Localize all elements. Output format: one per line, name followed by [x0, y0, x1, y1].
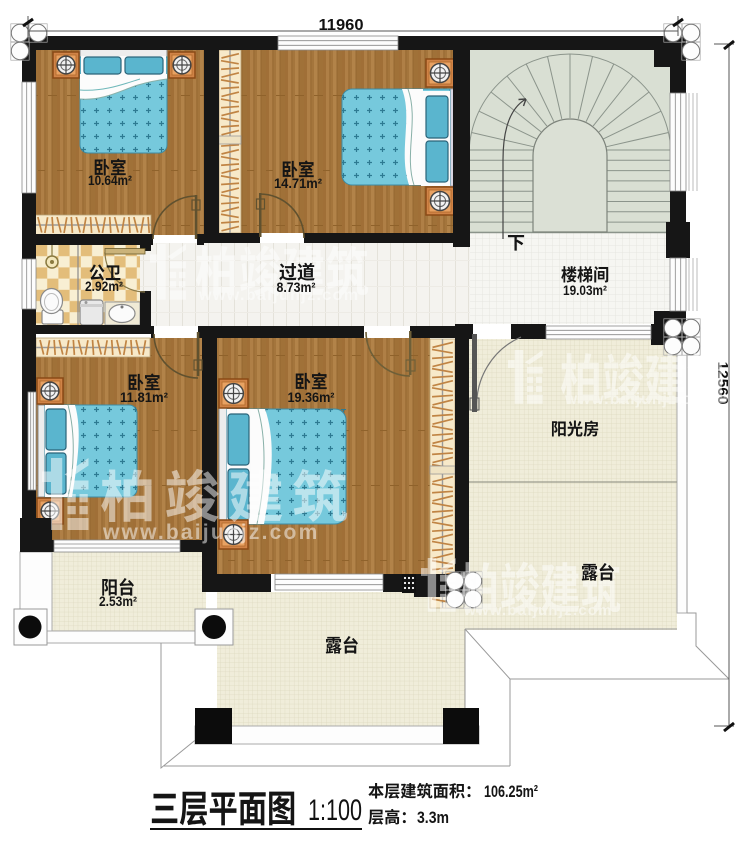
- svg-text:11.81m²: 11.81m²: [120, 389, 168, 405]
- svg-text:2.92m²: 2.92m²: [85, 278, 123, 294]
- svg-text:8.73m²: 8.73m²: [277, 279, 316, 295]
- svg-text:19.03m²: 19.03m²: [563, 282, 607, 298]
- svg-text:www.baijunjz.com: www.baijunjz.com: [564, 391, 718, 408]
- svg-text:14.71m²: 14.71m²: [274, 175, 322, 191]
- svg-text:106.25m²: 106.25m²: [484, 783, 538, 801]
- svg-text:19.36m²: 19.36m²: [288, 389, 335, 405]
- svg-text:3.3m: 3.3m: [417, 809, 449, 827]
- svg-text:11960: 11960: [319, 17, 364, 34]
- svg-text:1:100: 1:100: [308, 794, 362, 827]
- svg-text:2.53m²: 2.53m²: [99, 593, 137, 609]
- svg-text:10.64m²: 10.64m²: [88, 172, 132, 188]
- svg-text:www.baijunjz.com: www.baijunjz.com: [463, 602, 613, 619]
- svg-text:www.baijunjz.com: www.baijunjz.com: [102, 521, 319, 544]
